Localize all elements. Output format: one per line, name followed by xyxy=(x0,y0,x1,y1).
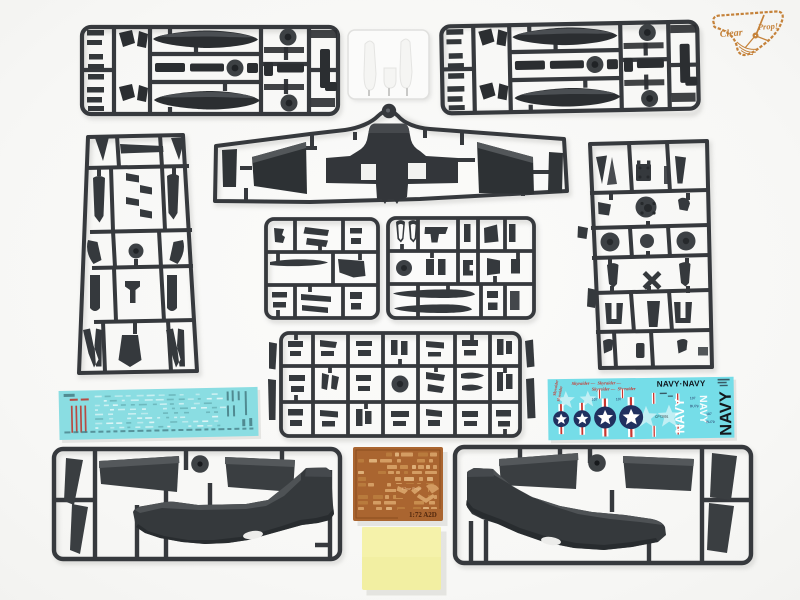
svg-text:107: 107 xyxy=(706,412,712,416)
svg-text:BU79: BU79 xyxy=(690,404,699,408)
svg-text:CP72001: CP72001 xyxy=(655,415,669,419)
svg-text:Clear: Clear xyxy=(719,27,743,40)
svg-text:Prop!: Prop! xyxy=(757,21,778,32)
svg-text:BU79: BU79 xyxy=(706,420,715,424)
svg-text:107: 107 xyxy=(690,396,696,400)
svg-text:NAVY·NAVY: NAVY·NAVY xyxy=(657,379,706,389)
svg-text:Skyraider — Skyraider —: Skyraider — Skyraider — xyxy=(572,380,622,386)
svg-text:NAVY: NAVY xyxy=(672,398,687,434)
svg-text:NAVY: NAVY xyxy=(717,391,736,436)
svg-text:107: 107 xyxy=(592,398,598,402)
svg-text:107: 107 xyxy=(616,397,622,401)
svg-text:Clear Prop!: Clear Prop! xyxy=(402,486,422,491)
svg-text:1:72 A2D: 1:72 A2D xyxy=(409,511,437,519)
